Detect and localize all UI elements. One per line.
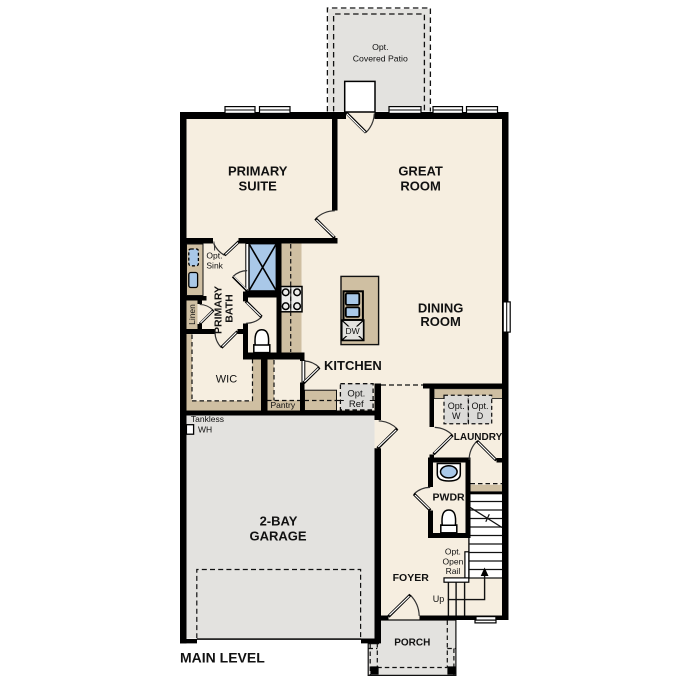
svg-text:Open: Open — [443, 556, 464, 566]
svg-text:Pantry: Pantry — [271, 400, 296, 410]
svg-text:LAUNDRY: LAUNDRY — [454, 432, 503, 443]
svg-text:SUITE: SUITE — [239, 178, 278, 193]
svg-text:KITCHEN: KITCHEN — [324, 358, 382, 373]
svg-text:PWDR: PWDR — [433, 492, 465, 504]
svg-text:ROOM: ROOM — [400, 178, 440, 193]
svg-text:GREAT: GREAT — [398, 163, 443, 178]
svg-text:BATH: BATH — [224, 294, 236, 322]
svg-text:Linen: Linen — [187, 304, 197, 325]
svg-text:Ref: Ref — [349, 399, 364, 410]
svg-text:ROOM: ROOM — [420, 314, 460, 329]
svg-text:Rail: Rail — [446, 566, 461, 576]
svg-text:Opt.: Opt. — [445, 547, 461, 557]
svg-text:W: W — [452, 411, 461, 421]
svg-text:DW: DW — [346, 326, 360, 336]
svg-text:Covered Patio: Covered Patio — [353, 54, 408, 64]
svg-text:Tankless: Tankless — [191, 414, 224, 424]
svg-text:PRIMARY: PRIMARY — [212, 286, 224, 334]
svg-text:Sink: Sink — [206, 260, 223, 270]
svg-text:Opt.: Opt. — [471, 401, 488, 411]
svg-text:GARAGE: GARAGE — [249, 529, 306, 544]
svg-text:Opt.: Opt. — [347, 389, 365, 400]
svg-text:Up: Up — [433, 594, 445, 604]
svg-text:FOYER: FOYER — [393, 572, 430, 584]
svg-text:Opt.: Opt. — [372, 42, 388, 52]
svg-text:2-BAY: 2-BAY — [260, 513, 298, 528]
svg-text:WIC: WIC — [216, 373, 237, 385]
svg-text:PRIMARY: PRIMARY — [228, 163, 288, 178]
svg-text:Opt.: Opt. — [448, 401, 465, 411]
svg-text:PORCH: PORCH — [394, 637, 430, 648]
svg-text:MAIN LEVEL: MAIN LEVEL — [180, 650, 265, 666]
svg-text:D: D — [477, 411, 484, 421]
svg-text:Opt.: Opt. — [206, 250, 222, 260]
svg-text:WH: WH — [198, 424, 212, 434]
